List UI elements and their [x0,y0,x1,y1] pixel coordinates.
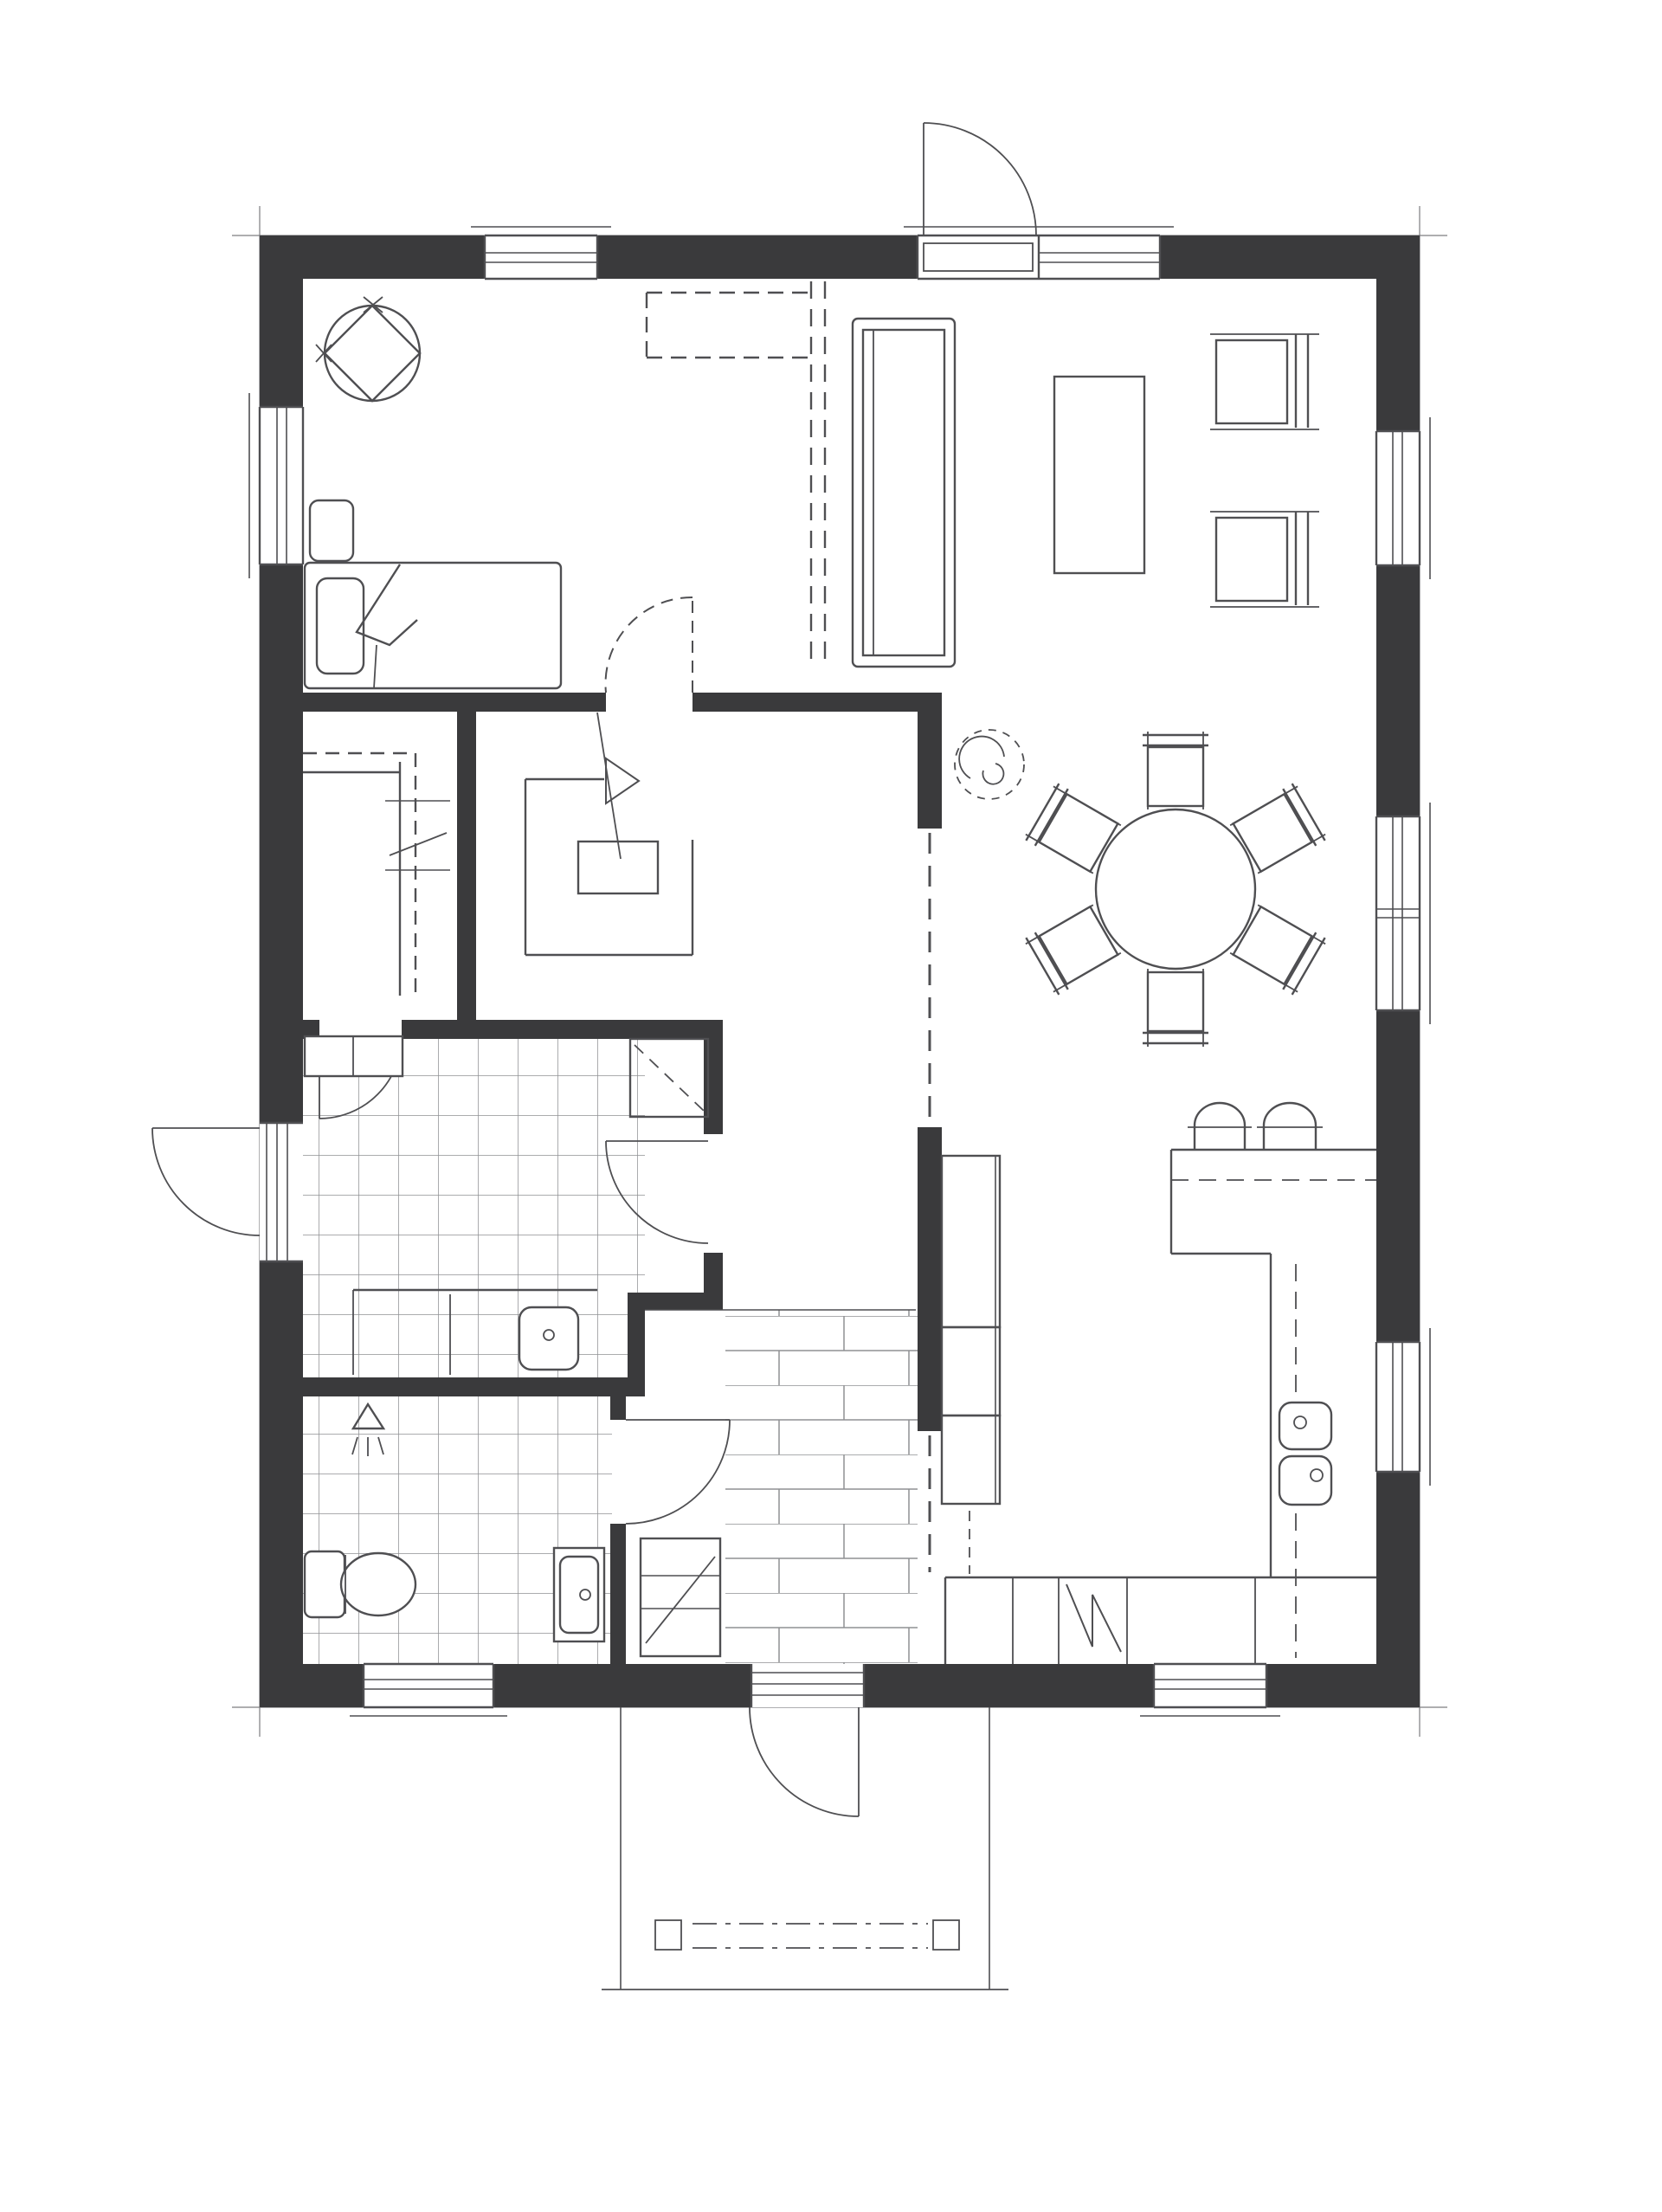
wall-center-lower [918,1127,942,1431]
shape [1154,1664,1266,1707]
toilet-bowl [341,1553,415,1615]
laundry-tile-floor [303,1036,645,1377]
wall-bottom-4 [1266,1664,1420,1707]
floor-plan-document [0,0,1662,2212]
floor-plan [0,0,1662,2212]
wall-left-2 [260,564,303,1123]
window-wc-bottom [350,1664,507,1716]
shape [1376,1342,1420,1472]
shape [260,407,303,564]
wall-corridor-west-2 [704,1253,723,1293]
wall-left-1 [260,235,303,407]
wall-entry-north [628,1293,723,1310]
window-bedroom-top [471,227,611,279]
wall-bedroom-south-left [303,693,606,712]
shape [751,1664,864,1707]
wall-left-3 [260,1261,303,1707]
shape [485,235,597,279]
wall-bottom-3 [864,1664,1154,1707]
wall-wc-east-1 [610,1396,626,1420]
wall-closet-stair [457,712,476,1022]
wall-bottom-1 [260,1664,364,1707]
laundry-sink [519,1307,578,1370]
window-kitchen-bottom [1140,1664,1280,1716]
entry-shoe-cabinet [641,1538,720,1656]
shape [1376,816,1420,1010]
wall-bedroom-south-right [692,693,942,712]
kitchen-sink-2 [1279,1456,1331,1505]
toilet-tank [305,1551,345,1617]
wall-center-upper [918,712,942,829]
entry-brick-floor [725,1310,918,1664]
shape [364,1664,493,1707]
wall-laundry-north-right [402,1020,723,1039]
wall-right-2 [1376,565,1420,816]
wall-top-2 [597,235,918,279]
shape [641,1538,720,1656]
wall-wc-east-2 [610,1524,626,1664]
wall-wc-north [303,1377,645,1396]
wall-bottom-2 [493,1664,751,1707]
wall-right-1 [1376,235,1420,431]
shape [1376,431,1420,565]
wall-right-3 [1376,1010,1420,1342]
